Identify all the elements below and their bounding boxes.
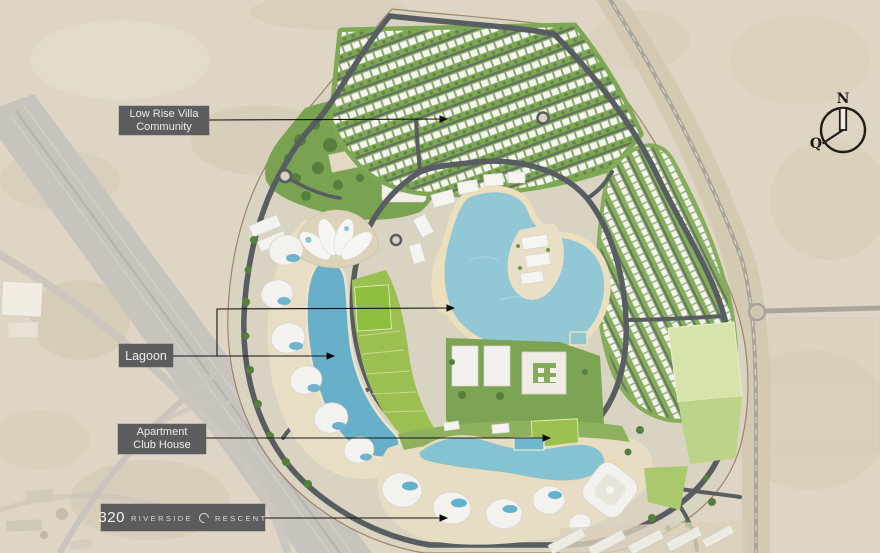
label-lagoon: Lagoon (119, 344, 173, 367)
label-line: Community (119, 121, 209, 134)
roundabout-northwest (279, 170, 291, 182)
villa-district (333, 27, 639, 193)
brand-word-crescent: RESCENT (215, 513, 268, 523)
roundabout-center-west (391, 235, 401, 245)
label-320-riverside-crescent: 320 RIVERSIDE RESCENT (101, 504, 265, 531)
club-house-pool (514, 438, 544, 450)
master-plan-map: N Q (0, 0, 880, 553)
brand-word-riverside: RIVERSIDE (131, 513, 193, 523)
crescent-icon (197, 510, 211, 524)
compass-qibla-letter: Q (810, 136, 822, 152)
roundabout-villas (538, 113, 549, 124)
label-line: Apartment (118, 426, 206, 439)
roundabout-east (749, 304, 765, 320)
label-line: Club House (118, 439, 206, 452)
compass-north-letter: N (837, 91, 850, 107)
label-low-rise-villa-community: Low Rise Villa Community (119, 106, 209, 135)
master-plan-screenshot: N Q Low Rise Villa Community Lagoon Apar… (0, 0, 880, 553)
label-line: Lagoon (119, 349, 173, 363)
label-line: Low Rise Villa (119, 108, 209, 121)
brand-number: 320 (98, 509, 125, 526)
label-apartment-club-house: Apartment Club House (118, 424, 206, 454)
